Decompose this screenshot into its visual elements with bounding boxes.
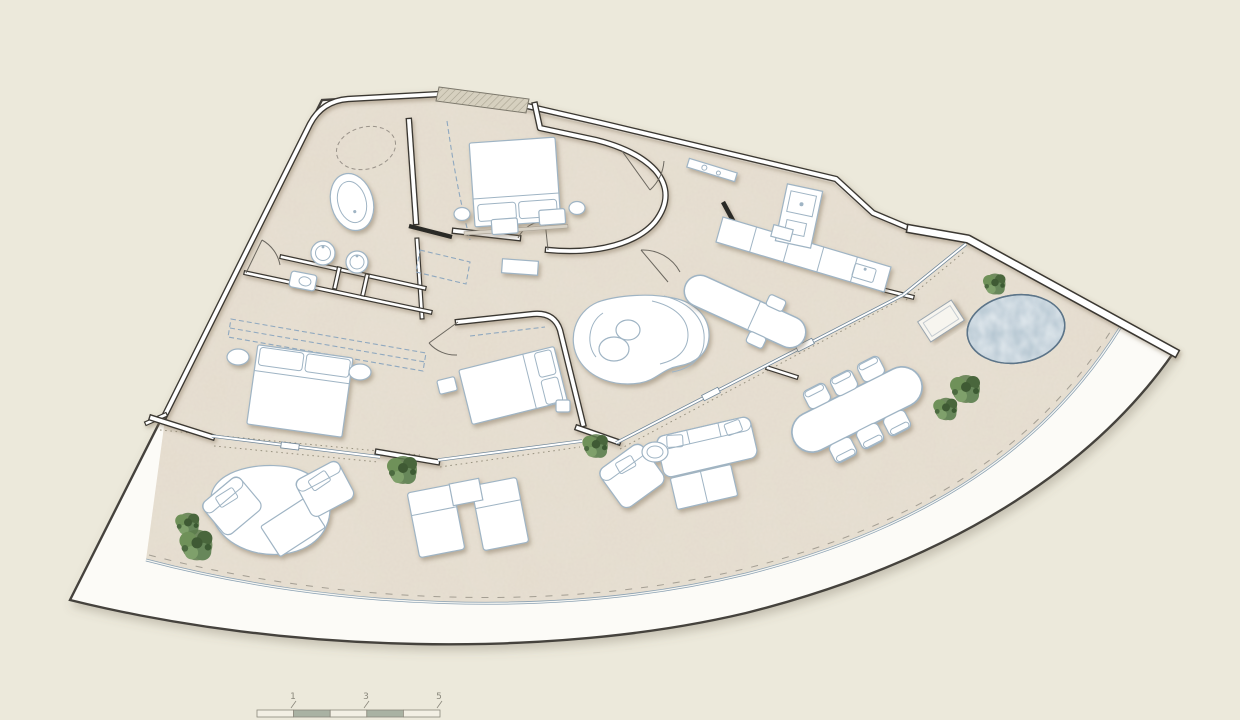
- pouf: [599, 337, 629, 361]
- bed2: [247, 345, 353, 438]
- basin: [346, 251, 368, 273]
- nightstand: [454, 208, 470, 221]
- side-table: [556, 400, 570, 412]
- nightstand: [569, 202, 585, 215]
- scale-label-1: 1: [290, 692, 296, 702]
- outdoor-side-table: [642, 442, 668, 462]
- nightstand: [349, 364, 371, 380]
- scale-label-3: 3: [363, 692, 369, 702]
- floor-plan-canvas: 1 3 5: [0, 0, 1240, 720]
- closet-box: [502, 259, 539, 275]
- basin: [311, 241, 335, 265]
- nightstand: [227, 349, 249, 365]
- floor-plan-page: 1 3 5: [0, 0, 1240, 720]
- scale-label-5: 5: [436, 692, 442, 702]
- pouf: [616, 320, 640, 340]
